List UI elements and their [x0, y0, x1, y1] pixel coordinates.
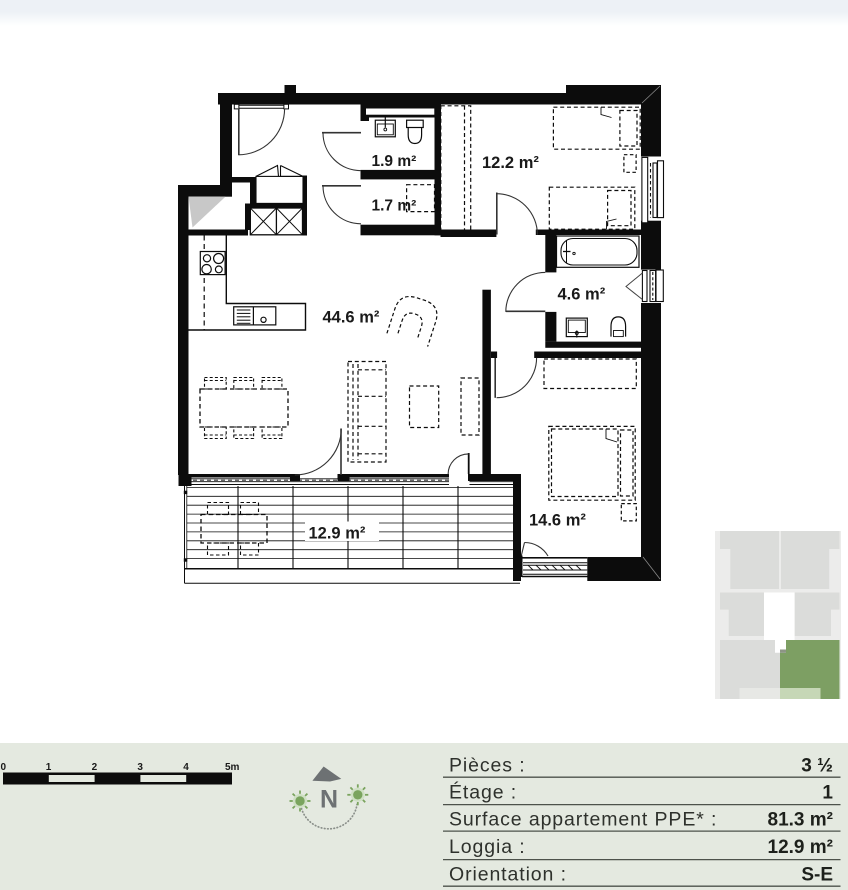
- svg-text:12.2 m²: 12.2 m²: [482, 154, 539, 172]
- svg-text:Étage :: Étage :: [449, 781, 517, 804]
- svg-text:0: 0: [1, 762, 7, 773]
- svg-text:2: 2: [92, 762, 98, 773]
- svg-text:S-E: S-E: [801, 865, 833, 886]
- svg-text:N: N: [320, 786, 338, 814]
- svg-text:4: 4: [183, 762, 189, 773]
- svg-text:1.9 m²: 1.9 m²: [372, 153, 417, 170]
- svg-text:12.9 m²: 12.9 m²: [309, 525, 366, 543]
- svg-text:1: 1: [822, 783, 833, 804]
- svg-text:12.9 m²: 12.9 m²: [768, 837, 833, 858]
- svg-text:44.6 m²: 44.6 m²: [323, 309, 380, 327]
- svg-text:3 ½: 3 ½: [801, 756, 833, 777]
- svg-text:Orientation :: Orientation :: [449, 864, 567, 886]
- svg-text:Surface appartement PPE* :: Surface appartement PPE* :: [449, 809, 717, 831]
- svg-text:1.7 m²: 1.7 m²: [372, 198, 417, 215]
- svg-text:5m: 5m: [225, 762, 240, 773]
- svg-text:Pièces :: Pièces :: [449, 755, 526, 777]
- svg-text:Loggia :: Loggia :: [449, 836, 526, 858]
- svg-text:3: 3: [137, 762, 143, 773]
- svg-text:14.6 m²: 14.6 m²: [529, 512, 586, 530]
- svg-text:1: 1: [46, 762, 52, 773]
- svg-text:81.3 m²: 81.3 m²: [768, 810, 833, 831]
- svg-text:4.6 m²: 4.6 m²: [558, 286, 606, 304]
